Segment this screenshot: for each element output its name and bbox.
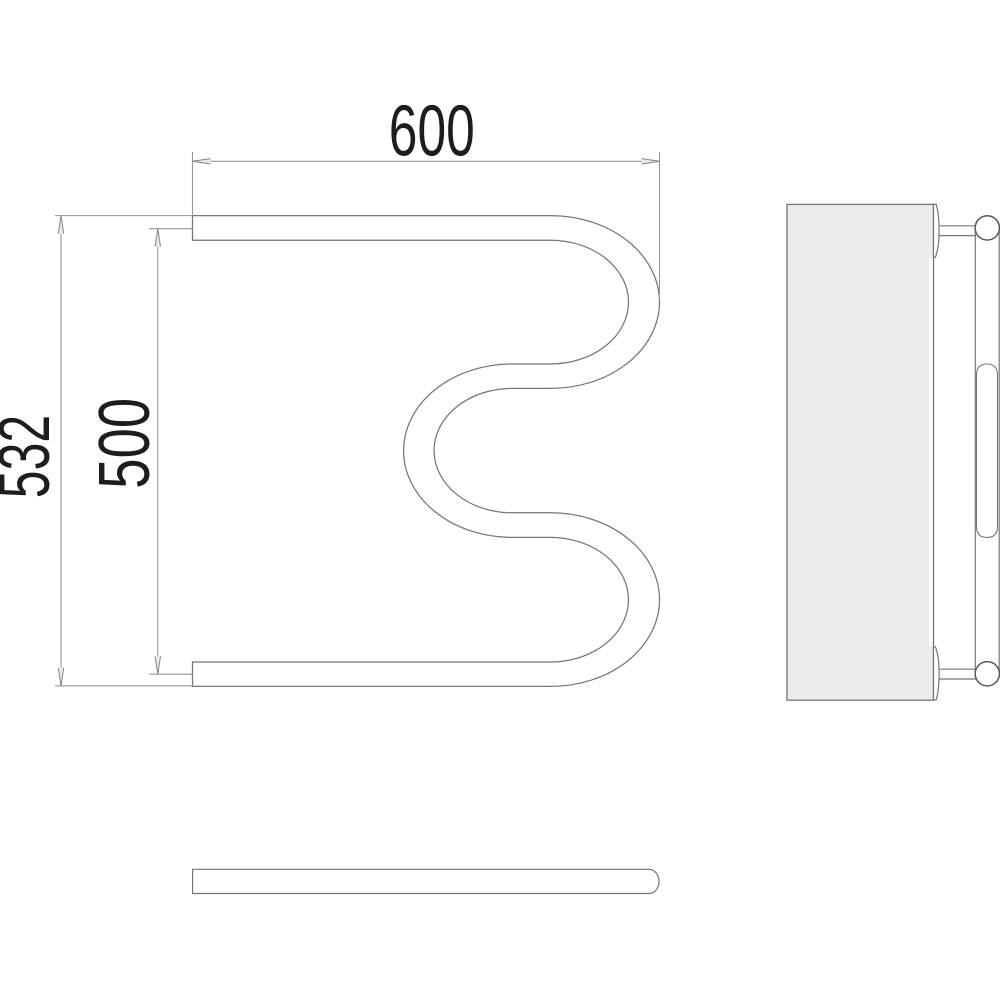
svg-text:600: 600 [389,91,475,171]
svg-text:532: 532 [0,415,65,498]
svg-text:500: 500 [84,398,165,489]
